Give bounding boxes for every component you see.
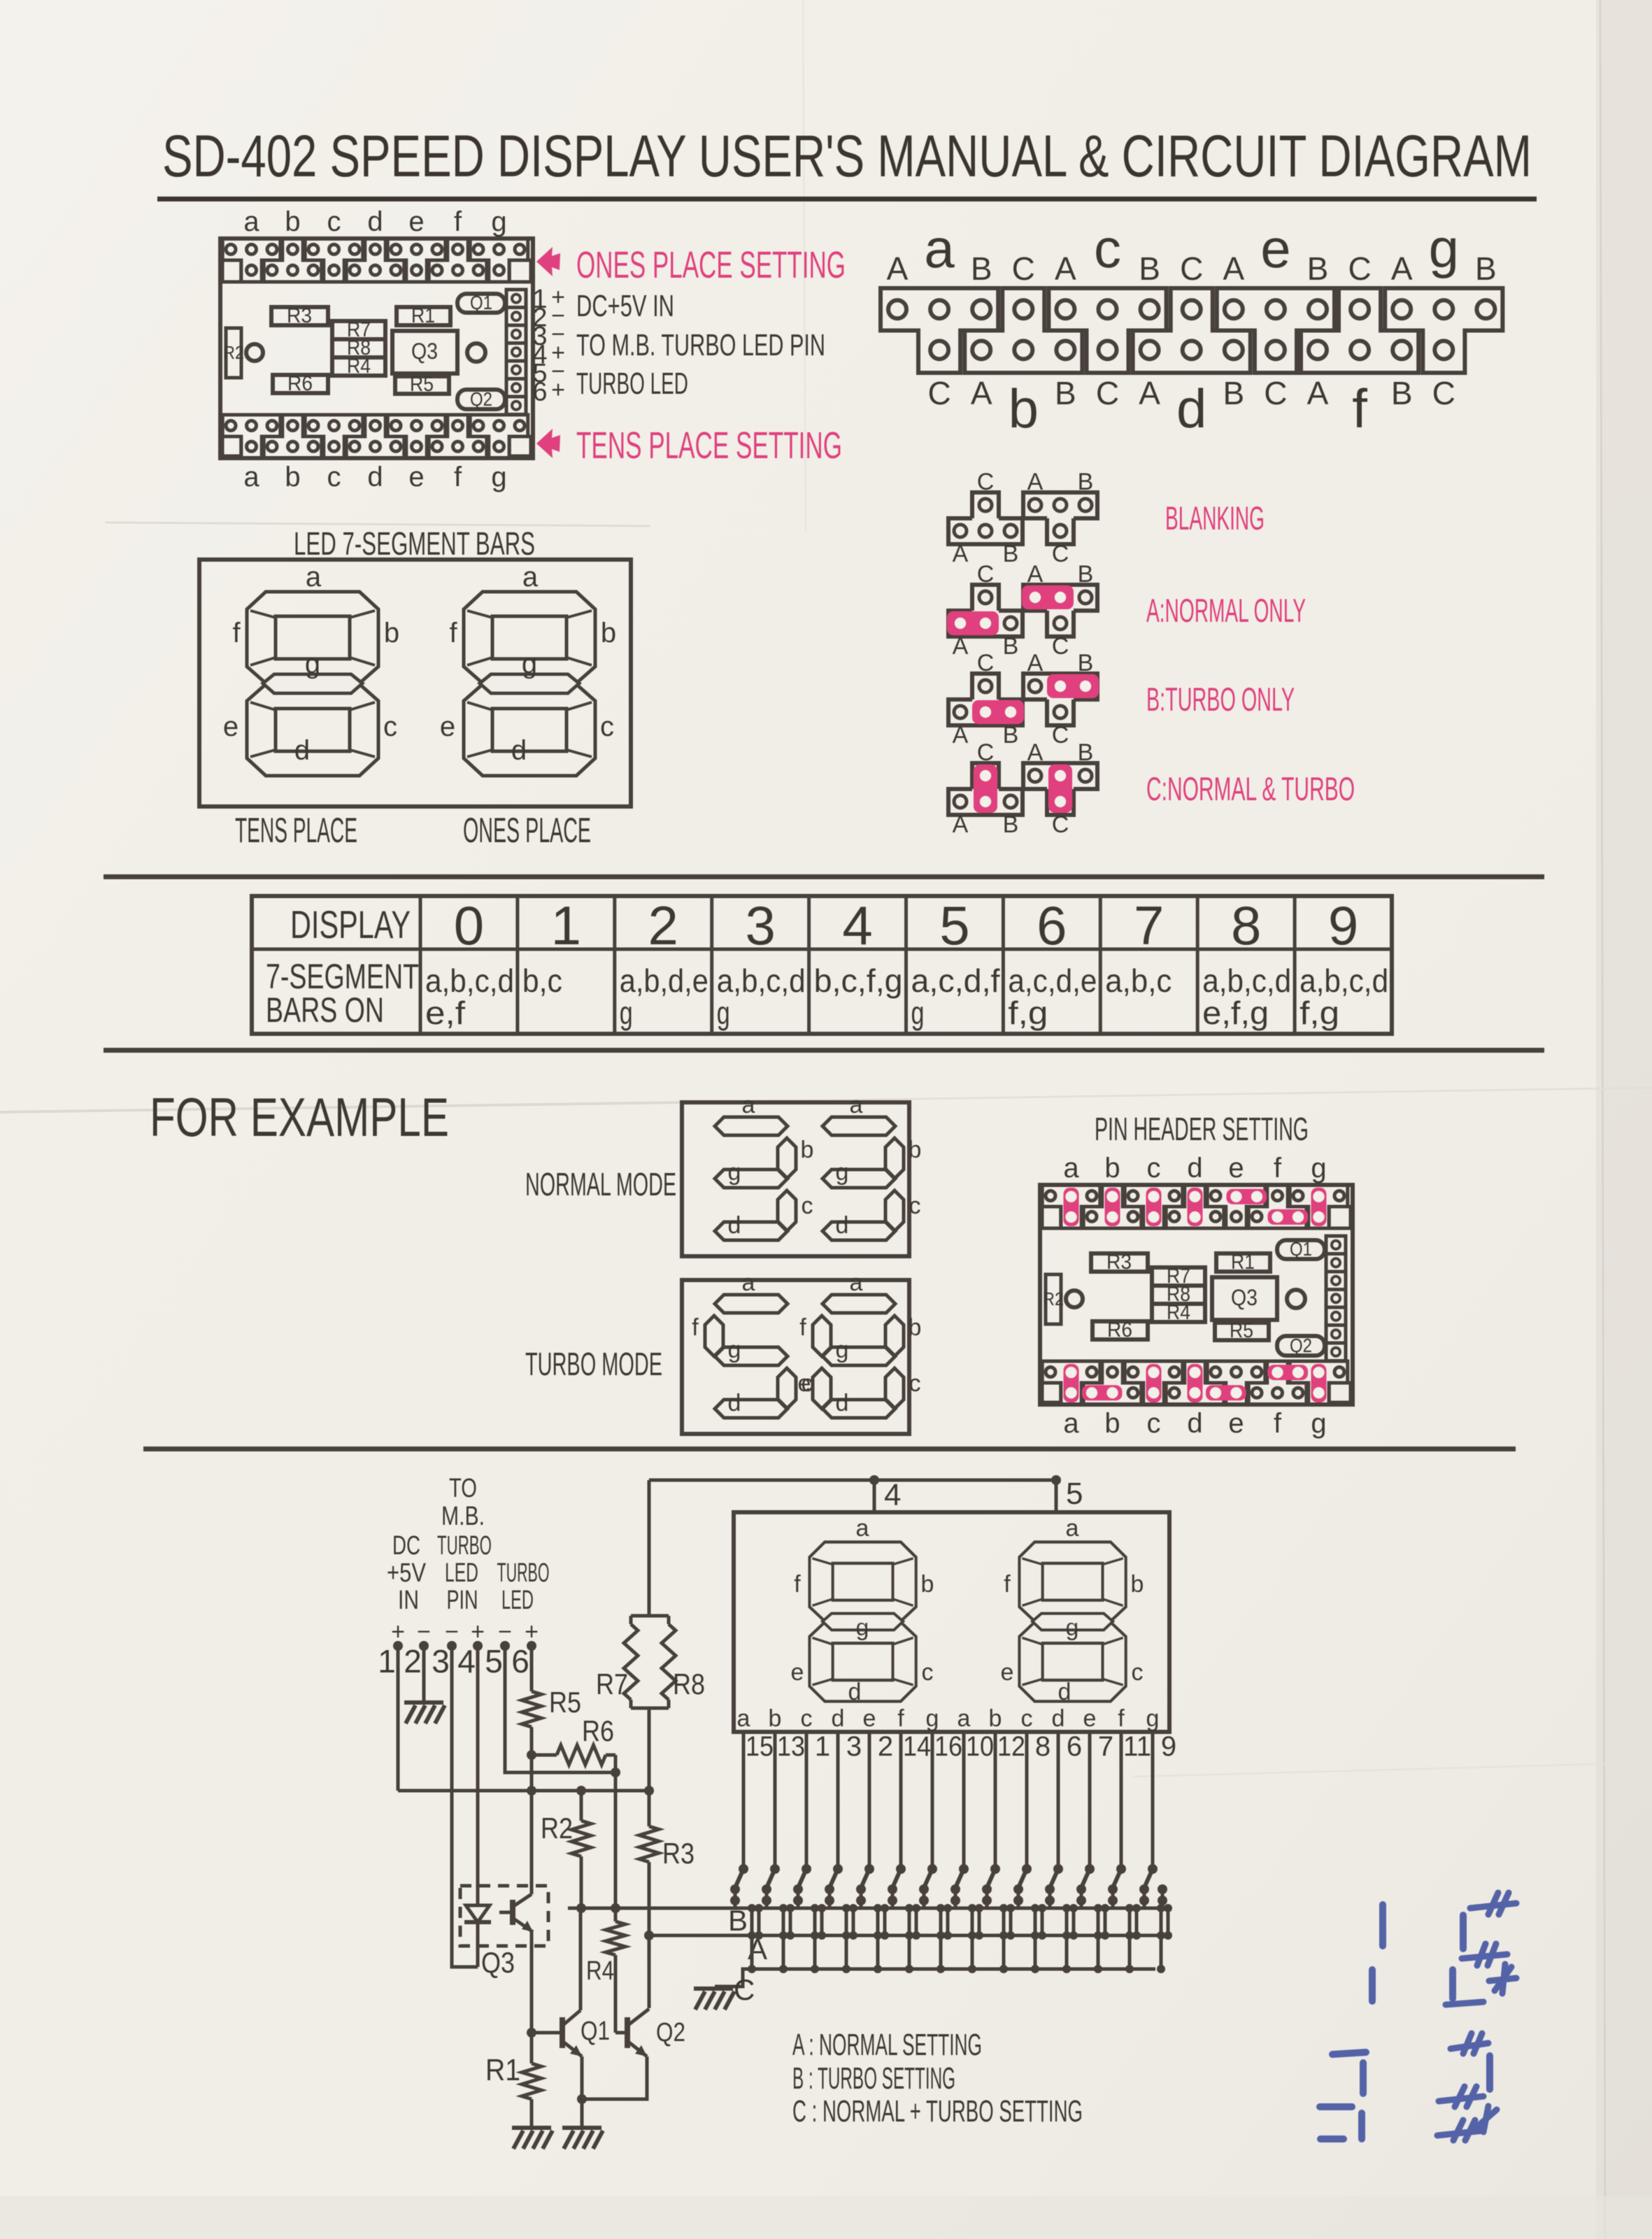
svg-text:3: 3 bbox=[846, 1731, 862, 1762]
svg-text:A: A bbox=[971, 375, 992, 411]
svg-text:R5: R5 bbox=[410, 373, 434, 396]
svg-text:a,c,d,f: a,c,d,f bbox=[911, 962, 1000, 999]
svg-text:b: b bbox=[1131, 1571, 1144, 1598]
svg-text:TURBO: TURBO bbox=[497, 1558, 550, 1588]
svg-text:b: b bbox=[285, 206, 300, 237]
svg-text:DC: DC bbox=[392, 1531, 420, 1561]
svg-text:f,g: f,g bbox=[1008, 995, 1048, 1031]
svg-text:B: B bbox=[1475, 250, 1497, 287]
svg-text:f: f bbox=[1004, 1571, 1011, 1598]
svg-text:B: B bbox=[1307, 250, 1329, 287]
svg-text:C: C bbox=[1180, 250, 1203, 287]
svg-text:d: d bbox=[1058, 1679, 1071, 1705]
svg-text:d: d bbox=[511, 735, 527, 766]
svg-text:R2: R2 bbox=[1043, 1288, 1064, 1309]
svg-text:15: 15 bbox=[746, 1731, 774, 1762]
svg-text:f: f bbox=[1118, 1705, 1125, 1732]
svg-text:b: b bbox=[921, 1571, 934, 1598]
svg-text:c: c bbox=[327, 462, 341, 492]
svg-text:A: A bbox=[953, 633, 969, 660]
svg-text:g: g bbox=[522, 648, 537, 679]
svg-text:14: 14 bbox=[903, 1731, 931, 1762]
svg-text:+: + bbox=[551, 377, 565, 404]
svg-text:f: f bbox=[897, 1705, 904, 1732]
svg-text:b,c,f,g: b,c,f,g bbox=[814, 962, 903, 999]
svg-text:e,f,g: e,f,g bbox=[1202, 995, 1269, 1031]
svg-text:f: f bbox=[794, 1571, 801, 1598]
svg-text:DC+5V IN: DC+5V IN bbox=[576, 289, 674, 323]
svg-text:2: 2 bbox=[404, 1643, 422, 1679]
svg-text:c: c bbox=[1094, 218, 1121, 279]
svg-text:0: 0 bbox=[454, 895, 484, 956]
svg-text:A:NORMAL ONLY: A:NORMAL ONLY bbox=[1146, 592, 1306, 629]
svg-text:R7: R7 bbox=[596, 1668, 628, 1700]
svg-text:a,b,c,d: a,b,c,d bbox=[425, 962, 514, 999]
svg-text:c: c bbox=[1132, 1659, 1144, 1686]
svg-text:b: b bbox=[1009, 378, 1039, 439]
svg-text:C: C bbox=[1052, 811, 1069, 838]
svg-text:R3: R3 bbox=[287, 304, 312, 327]
svg-text:3: 3 bbox=[745, 895, 775, 956]
svg-text:C: C bbox=[977, 561, 995, 588]
svg-text:4: 4 bbox=[884, 1478, 901, 1512]
svg-text:TENS PLACE SETTING: TENS PLACE SETTING bbox=[576, 425, 842, 467]
svg-text:g: g bbox=[856, 1614, 869, 1641]
svg-text:e: e bbox=[440, 711, 455, 742]
svg-text:C: C bbox=[1052, 722, 1069, 748]
svg-text:C: C bbox=[977, 739, 995, 766]
svg-text:A: A bbox=[1055, 250, 1076, 287]
svg-text:5: 5 bbox=[939, 895, 969, 956]
svg-text:g: g bbox=[836, 1159, 849, 1186]
svg-text:f: f bbox=[454, 206, 462, 237]
svg-text:Q3: Q3 bbox=[1231, 1285, 1258, 1310]
svg-text:DISPLAY: DISPLAY bbox=[290, 902, 411, 946]
svg-text:TURBO LED: TURBO LED bbox=[576, 367, 688, 401]
svg-text:B: B bbox=[1055, 375, 1076, 411]
svg-text:e: e bbox=[863, 1705, 876, 1732]
svg-text:R1: R1 bbox=[485, 2053, 520, 2087]
svg-text:7: 7 bbox=[1134, 895, 1164, 956]
svg-text:R5: R5 bbox=[549, 1686, 581, 1719]
svg-text:B: B bbox=[1078, 739, 1094, 766]
svg-text:M.B.: M.B. bbox=[441, 1502, 485, 1531]
svg-text:NORMAL MODE: NORMAL MODE bbox=[525, 1166, 676, 1202]
svg-text:a,b,c,d: a,b,c,d bbox=[1299, 962, 1388, 999]
svg-text:7: 7 bbox=[1098, 1731, 1113, 1762]
svg-text:8: 8 bbox=[1035, 1731, 1051, 1762]
svg-text:a: a bbox=[1063, 1153, 1079, 1184]
svg-text:A: A bbox=[1139, 375, 1160, 411]
svg-text:R3: R3 bbox=[1106, 1251, 1132, 1274]
svg-text:C: C bbox=[734, 1973, 755, 2006]
svg-text:B: B bbox=[1003, 633, 1019, 660]
svg-text:A: A bbox=[1223, 250, 1244, 287]
svg-text:b: b bbox=[1104, 1408, 1120, 1439]
svg-text:A: A bbox=[1027, 469, 1044, 495]
svg-text:d: d bbox=[367, 206, 383, 237]
svg-text:b: b bbox=[769, 1705, 782, 1732]
svg-text:TURBO MODE: TURBO MODE bbox=[525, 1346, 662, 1382]
svg-text:B:TURBO ONLY: B:TURBO ONLY bbox=[1146, 681, 1295, 718]
svg-text:9: 9 bbox=[1328, 895, 1358, 956]
svg-text:1: 1 bbox=[551, 895, 581, 956]
svg-text:c: c bbox=[909, 1370, 921, 1397]
svg-text:d: d bbox=[1176, 378, 1206, 439]
svg-text:g: g bbox=[1311, 1408, 1326, 1439]
svg-text:13: 13 bbox=[777, 1731, 805, 1762]
svg-text:PIN: PIN bbox=[447, 1586, 478, 1615]
svg-text:b: b bbox=[1104, 1153, 1120, 1184]
svg-text:B: B bbox=[1003, 541, 1019, 567]
svg-text:d: d bbox=[367, 462, 383, 492]
svg-text:R4: R4 bbox=[347, 355, 371, 378]
svg-text:e: e bbox=[408, 206, 424, 237]
svg-text:ONES PLACE SETTING: ONES PLACE SETTING bbox=[576, 244, 846, 286]
svg-text:R6: R6 bbox=[1107, 1318, 1132, 1342]
svg-text:g: g bbox=[620, 995, 633, 1031]
svg-text:16: 16 bbox=[934, 1731, 962, 1762]
svg-text:C : NORMAL + TURBO SETTING: C : NORMAL + TURBO SETTING bbox=[792, 2094, 1083, 2128]
svg-text:g: g bbox=[305, 648, 320, 679]
svg-text:g: g bbox=[491, 462, 506, 492]
svg-text:10: 10 bbox=[966, 1731, 994, 1762]
svg-text:g: g bbox=[926, 1705, 939, 1732]
svg-text:4: 4 bbox=[457, 1643, 476, 1679]
svg-text:R8: R8 bbox=[673, 1668, 705, 1700]
svg-text:B: B bbox=[1139, 250, 1160, 287]
svg-text:g: g bbox=[836, 1337, 849, 1363]
svg-text:a: a bbox=[243, 462, 259, 492]
svg-text:B: B bbox=[1078, 469, 1094, 495]
svg-text:g: g bbox=[1146, 1705, 1160, 1732]
svg-text:d: d bbox=[728, 1390, 741, 1416]
svg-text:c: c bbox=[1147, 1153, 1161, 1184]
svg-text:C: C bbox=[1052, 541, 1069, 567]
svg-text:ONES PLACE: ONES PLACE bbox=[463, 811, 591, 850]
svg-text:TURBO: TURBO bbox=[437, 1531, 492, 1561]
svg-text:8: 8 bbox=[1231, 895, 1261, 956]
svg-text:+5V: +5V bbox=[387, 1558, 427, 1588]
svg-text:f: f bbox=[454, 462, 462, 492]
svg-text:e: e bbox=[1001, 1659, 1014, 1686]
svg-text:A: A bbox=[953, 541, 969, 567]
svg-text:e: e bbox=[798, 1370, 811, 1397]
svg-text:4: 4 bbox=[842, 895, 872, 956]
svg-text:Q1: Q1 bbox=[1290, 1238, 1312, 1260]
svg-text:Q2: Q2 bbox=[470, 388, 492, 410]
svg-text:Q2: Q2 bbox=[1290, 1335, 1312, 1356]
svg-text:C: C bbox=[1012, 250, 1035, 287]
svg-text:c: c bbox=[922, 1659, 934, 1686]
svg-text:12: 12 bbox=[997, 1731, 1025, 1762]
svg-text:R4: R4 bbox=[586, 1956, 614, 1986]
svg-text:R5: R5 bbox=[1230, 1319, 1253, 1342]
svg-text:Q1: Q1 bbox=[470, 292, 492, 313]
svg-text:a: a bbox=[742, 1270, 755, 1296]
svg-text:A: A bbox=[1391, 250, 1413, 287]
svg-text:a: a bbox=[856, 1515, 869, 1542]
svg-text:Q3: Q3 bbox=[411, 339, 438, 364]
svg-text:A : NORMAL SETTING: A : NORMAL SETTING bbox=[792, 2028, 982, 2062]
svg-text:f: f bbox=[232, 618, 241, 648]
svg-text:BLANKING: BLANKING bbox=[1165, 499, 1265, 536]
svg-text:d: d bbox=[728, 1212, 741, 1239]
svg-text:R6: R6 bbox=[287, 372, 313, 395]
svg-text:IN: IN bbox=[398, 1586, 419, 1615]
svg-text:a: a bbox=[957, 1705, 971, 1732]
svg-text:b: b bbox=[384, 618, 399, 648]
svg-text:A: A bbox=[953, 811, 969, 838]
svg-text:2: 2 bbox=[648, 895, 678, 956]
svg-text:c: c bbox=[1021, 1705, 1033, 1732]
svg-text:c: c bbox=[1147, 1408, 1161, 1439]
svg-text:d: d bbox=[1187, 1153, 1202, 1184]
svg-text:a: a bbox=[522, 562, 539, 592]
svg-text:f: f bbox=[449, 618, 457, 648]
svg-text:c: c bbox=[383, 711, 397, 742]
svg-text:A: A bbox=[1027, 739, 1044, 766]
svg-text:a,b,c,d: a,b,c,d bbox=[1202, 962, 1291, 999]
svg-text:R4: R4 bbox=[1167, 1301, 1190, 1324]
svg-text:C: C bbox=[1432, 375, 1455, 411]
svg-text:d: d bbox=[1187, 1408, 1202, 1439]
svg-text:a: a bbox=[924, 218, 955, 279]
svg-text:f: f bbox=[692, 1314, 699, 1341]
svg-text:C: C bbox=[1096, 375, 1119, 411]
svg-text:c: c bbox=[801, 1705, 813, 1732]
svg-text:2: 2 bbox=[878, 1731, 893, 1762]
svg-text:B: B bbox=[1391, 375, 1413, 411]
svg-text:PIN HEADER SETTING: PIN HEADER SETTING bbox=[1095, 1111, 1309, 1147]
svg-text:SD-402 SPEED DISPLAY USER'S MA: SD-402 SPEED DISPLAY USER'S MANUAL & CIR… bbox=[162, 123, 1532, 189]
svg-text:a,b,c: a,b,c bbox=[1105, 962, 1172, 999]
svg-text:R3: R3 bbox=[662, 1837, 695, 1870]
svg-text:a: a bbox=[850, 1270, 863, 1296]
svg-text:b: b bbox=[601, 618, 616, 648]
svg-text:e: e bbox=[1083, 1705, 1097, 1732]
svg-text:C: C bbox=[1052, 633, 1069, 660]
svg-text:e: e bbox=[408, 462, 424, 492]
svg-text:B : TURBO SETTING: B : TURBO SETTING bbox=[792, 2061, 955, 2096]
svg-text:9: 9 bbox=[1161, 1731, 1176, 1762]
svg-text:FOR EXAMPLE: FOR EXAMPLE bbox=[150, 1086, 449, 1148]
svg-text:d: d bbox=[294, 735, 310, 766]
svg-text:d: d bbox=[848, 1679, 862, 1705]
svg-text:Q1: Q1 bbox=[581, 2017, 610, 2046]
svg-text:Q2: Q2 bbox=[656, 2018, 685, 2047]
svg-text:e: e bbox=[1228, 1408, 1244, 1439]
svg-text:g: g bbox=[728, 1159, 741, 1186]
svg-text:a: a bbox=[742, 1092, 755, 1118]
svg-text:B: B bbox=[1003, 722, 1019, 748]
svg-text:R1: R1 bbox=[411, 304, 435, 327]
svg-text:b: b bbox=[801, 1137, 814, 1163]
svg-text:B: B bbox=[971, 250, 992, 287]
svg-text:LED: LED bbox=[501, 1586, 534, 1615]
svg-text:b: b bbox=[909, 1137, 922, 1163]
svg-text:a: a bbox=[850, 1092, 863, 1118]
svg-text:Q3: Q3 bbox=[481, 1946, 515, 1979]
svg-text:B: B bbox=[1003, 811, 1019, 838]
svg-text:g: g bbox=[728, 1337, 741, 1363]
svg-text:a: a bbox=[1066, 1515, 1079, 1542]
svg-text:d: d bbox=[832, 1705, 845, 1732]
svg-text:C: C bbox=[977, 469, 995, 495]
svg-text:TO: TO bbox=[449, 1474, 477, 1503]
svg-text:R1: R1 bbox=[1231, 1251, 1255, 1274]
svg-text:5: 5 bbox=[485, 1643, 503, 1679]
svg-text:e: e bbox=[791, 1659, 804, 1686]
svg-text:C: C bbox=[1264, 375, 1287, 411]
svg-text:LED 7-SEGMENT BARS: LED 7-SEGMENT BARS bbox=[294, 525, 535, 562]
svg-text:LED: LED bbox=[445, 1558, 478, 1588]
svg-text:R6: R6 bbox=[582, 1714, 614, 1747]
svg-text:1: 1 bbox=[378, 1643, 396, 1679]
svg-text:5: 5 bbox=[1066, 1477, 1083, 1511]
svg-text:b,c: b,c bbox=[522, 962, 562, 999]
svg-text:g: g bbox=[1311, 1153, 1326, 1184]
svg-text:6: 6 bbox=[532, 378, 547, 407]
svg-text:A: A bbox=[1027, 561, 1044, 588]
svg-text:c: c bbox=[909, 1193, 921, 1219]
svg-text:6: 6 bbox=[1067, 1731, 1082, 1762]
svg-text:6: 6 bbox=[1037, 895, 1067, 956]
svg-text:d: d bbox=[836, 1390, 849, 1416]
svg-text:g: g bbox=[1066, 1614, 1079, 1641]
svg-text:b: b bbox=[285, 462, 300, 492]
svg-text:b: b bbox=[909, 1314, 922, 1341]
svg-text:A: A bbox=[953, 722, 969, 748]
svg-text:b: b bbox=[989, 1705, 1002, 1732]
svg-text:e,f: e,f bbox=[425, 995, 465, 1031]
svg-text:c: c bbox=[600, 711, 614, 742]
svg-text:e: e bbox=[223, 711, 238, 742]
svg-text:3: 3 bbox=[432, 1643, 450, 1679]
svg-text:6: 6 bbox=[511, 1643, 529, 1679]
svg-text:c: c bbox=[327, 206, 341, 237]
svg-text:f: f bbox=[799, 1314, 806, 1341]
svg-text:f: f bbox=[1274, 1408, 1282, 1439]
svg-text:e: e bbox=[1228, 1153, 1244, 1184]
svg-text:C: C bbox=[927, 375, 950, 411]
svg-text:TO M.B. TURBO LED PIN: TO M.B. TURBO LED PIN bbox=[576, 328, 825, 362]
svg-text:a,b,d,e: a,b,d,e bbox=[620, 962, 708, 999]
svg-text:R2: R2 bbox=[541, 1812, 573, 1844]
svg-text:B: B bbox=[1078, 561, 1094, 588]
svg-text:g: g bbox=[491, 206, 506, 237]
svg-text:a,c,d,e: a,c,d,e bbox=[1008, 962, 1097, 999]
svg-text:a: a bbox=[243, 206, 259, 237]
svg-text:g: g bbox=[1429, 218, 1459, 279]
svg-text:B: B bbox=[1223, 375, 1244, 411]
svg-text:A: A bbox=[887, 250, 909, 287]
svg-text:a: a bbox=[1063, 1408, 1079, 1439]
svg-text:B: B bbox=[728, 1904, 748, 1937]
svg-text:d: d bbox=[1052, 1705, 1065, 1732]
svg-text:C: C bbox=[1348, 250, 1371, 287]
svg-text:R2: R2 bbox=[223, 342, 244, 363]
svg-text:C: C bbox=[977, 650, 995, 676]
svg-text:g: g bbox=[911, 995, 925, 1031]
svg-text:c: c bbox=[802, 1193, 813, 1219]
svg-text:f,g: f,g bbox=[1299, 995, 1339, 1031]
svg-text:a: a bbox=[306, 562, 322, 592]
svg-text:g: g bbox=[717, 995, 730, 1031]
svg-text:11: 11 bbox=[1123, 1731, 1151, 1762]
svg-text:C:NORMAL & TURBO: C:NORMAL & TURBO bbox=[1146, 770, 1355, 807]
svg-text:e: e bbox=[1260, 218, 1290, 279]
svg-text:a,b,c,d: a,b,c,d bbox=[717, 962, 806, 999]
svg-text:A: A bbox=[1307, 375, 1329, 411]
svg-text:1: 1 bbox=[815, 1731, 830, 1762]
svg-text:B: B bbox=[1078, 650, 1094, 676]
svg-text:A: A bbox=[1027, 650, 1044, 676]
svg-text:BARS ON: BARS ON bbox=[266, 990, 384, 1030]
svg-text:f: f bbox=[1352, 378, 1367, 439]
svg-text:f: f bbox=[1274, 1153, 1282, 1184]
svg-text:d: d bbox=[836, 1212, 849, 1239]
svg-text:TENS PLACE: TENS PLACE bbox=[235, 811, 357, 850]
svg-text:a: a bbox=[737, 1705, 750, 1732]
